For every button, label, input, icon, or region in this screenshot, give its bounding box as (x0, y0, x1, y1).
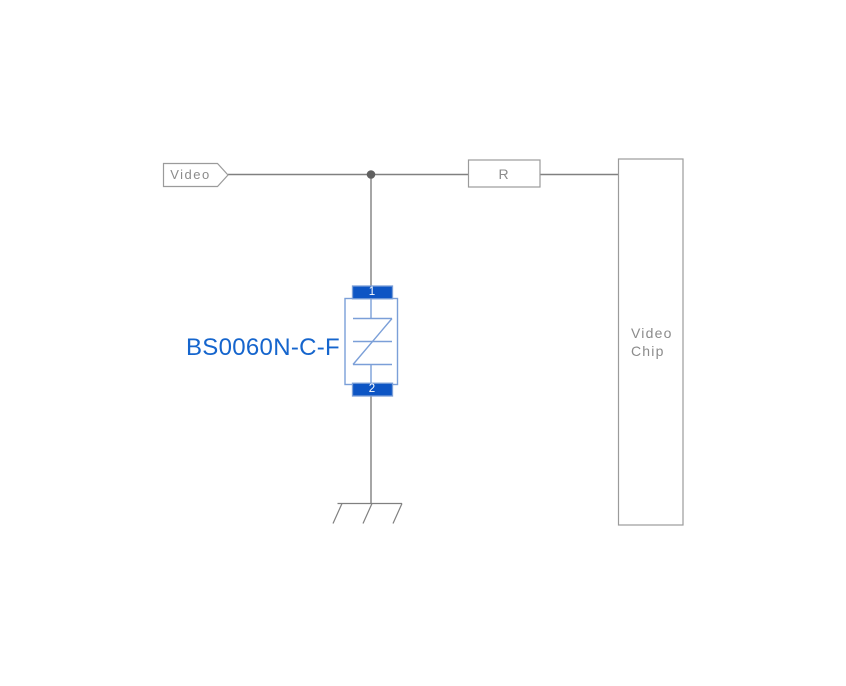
ground-hatch-left (333, 504, 342, 524)
schematic-canvas: Video R Video Chip BS0060N-C-F 1 2 (0, 0, 846, 686)
schematic-drawing (0, 0, 846, 686)
ground-hatch-right (393, 504, 402, 524)
tvs-part-number: BS0060N-C-F (168, 334, 340, 362)
tvs-pin2-number: 2 (352, 383, 392, 396)
junction-dot-icon (367, 170, 376, 179)
ground-hatch-middle (363, 504, 372, 524)
ground-symbol-icon (333, 504, 402, 524)
net-label-video: Video (163, 163, 218, 186)
tvs-pin1-number: 1 (352, 286, 392, 299)
video-chip-label: Video Chip (631, 324, 683, 360)
resistor-label: R (468, 160, 540, 187)
